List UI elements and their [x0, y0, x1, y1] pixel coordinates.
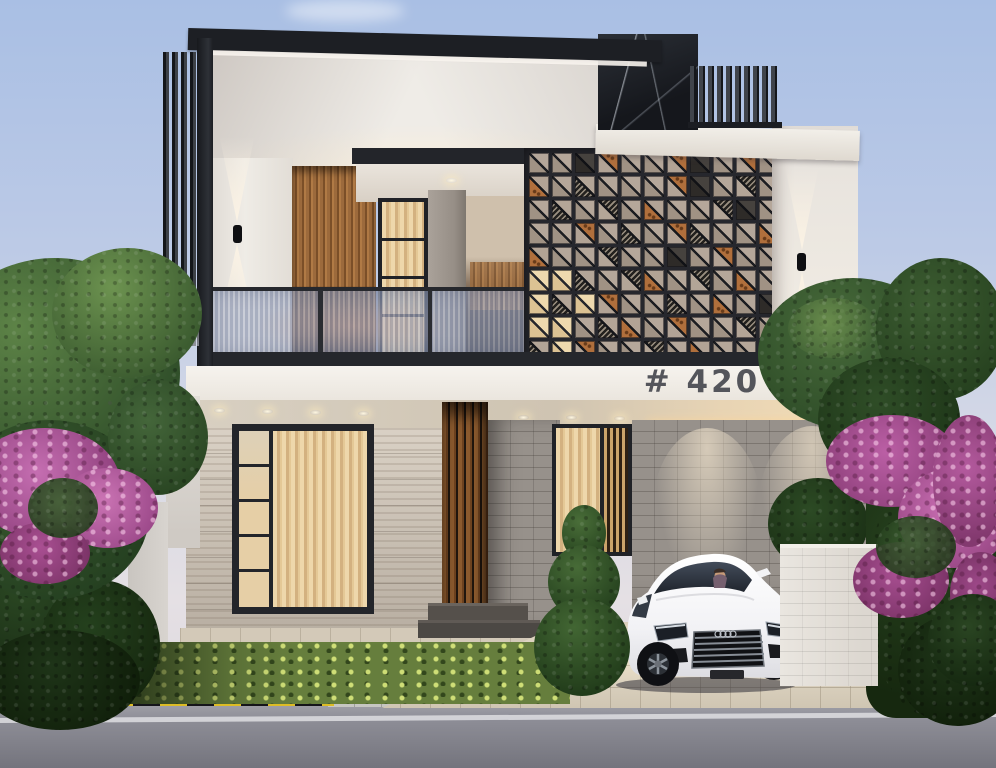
screen-cell — [690, 317, 710, 337]
screen-cell — [667, 176, 687, 196]
screen-cell — [644, 176, 664, 196]
screen-cell — [575, 317, 595, 337]
screen-cell — [713, 317, 733, 337]
railing-post — [428, 290, 432, 356]
screen-cell — [736, 270, 756, 290]
soffit-downlight — [614, 416, 625, 421]
screen-cell — [552, 317, 572, 337]
conical-bush-base — [534, 598, 630, 696]
screen-cell — [667, 317, 687, 337]
screen-cell — [598, 176, 618, 196]
screen-cell — [621, 294, 641, 314]
screen-cell — [713, 247, 733, 267]
window-mullion — [378, 238, 428, 241]
window-mullion — [239, 569, 269, 572]
roof-slat-base — [688, 122, 782, 128]
screen-cell — [575, 294, 595, 314]
screen-cell — [598, 270, 618, 290]
house-number: # 420 — [636, 364, 768, 400]
screen-cell — [552, 176, 572, 196]
window-mullion — [239, 499, 269, 502]
screen-cell — [667, 294, 687, 314]
screen-cell — [529, 223, 549, 243]
screen-cell — [552, 247, 572, 267]
screen-cell — [690, 200, 710, 220]
sconce-uplight — [780, 150, 824, 250]
soffit-downlight — [262, 409, 273, 414]
screen-cell — [690, 270, 710, 290]
screen-cell — [552, 294, 572, 314]
screen-cell — [529, 247, 549, 267]
screen-cell — [621, 317, 641, 337]
screen-cell — [552, 200, 572, 220]
ground-left-window — [232, 424, 374, 614]
screen-cell — [736, 317, 756, 337]
car-white-sedan — [606, 538, 806, 694]
screen-cell — [621, 153, 641, 173]
soffit-downlight — [358, 411, 369, 416]
screen-cell — [598, 247, 618, 267]
screen-cell — [644, 317, 664, 337]
scene-villa-rendering: # 420 — [0, 0, 996, 768]
screen-cell — [598, 200, 618, 220]
screen-cell — [598, 317, 618, 337]
window-side-pane — [239, 431, 269, 607]
screen-cell — [736, 223, 756, 243]
wall-sconce — [233, 225, 242, 243]
screen-cell — [736, 247, 756, 267]
soffit-downlight — [566, 415, 577, 420]
screen-cell — [713, 200, 733, 220]
screen-cell — [598, 153, 618, 173]
screen-cell — [713, 270, 733, 290]
tree-left — [52, 248, 202, 378]
screen-cell — [621, 247, 641, 267]
decorative-screen — [524, 148, 784, 366]
window-mullion — [378, 276, 428, 279]
hedge — [108, 642, 570, 704]
screen-cell — [575, 200, 595, 220]
screen-cell — [575, 176, 595, 196]
screen-cell — [644, 247, 664, 267]
screen-cell — [529, 270, 549, 290]
railing-post — [318, 290, 323, 356]
screen-cell — [713, 223, 733, 243]
screen-cell — [644, 270, 664, 290]
screen-cell — [667, 247, 687, 267]
screen-cell — [667, 270, 687, 290]
screen-cell — [598, 223, 618, 243]
screen-cell — [621, 200, 641, 220]
screen-cell — [552, 223, 572, 243]
screen-cell — [575, 247, 595, 267]
screen-cell — [736, 294, 756, 314]
screen-cell — [690, 223, 710, 243]
tree-right-highlight — [788, 298, 878, 358]
balcony-glass-railing — [208, 290, 530, 356]
screen-cell — [667, 200, 687, 220]
screen-cell — [529, 153, 549, 173]
screen-cell — [690, 247, 710, 267]
window-mullion — [239, 534, 269, 537]
screen-cell — [667, 223, 687, 243]
window-mullion — [239, 464, 269, 467]
screen-cell — [552, 153, 572, 173]
screen-cell — [690, 294, 710, 314]
screen-cell — [736, 200, 756, 220]
screen-cell — [529, 176, 549, 196]
soffit-downlight — [214, 408, 225, 413]
screen-cell — [713, 294, 733, 314]
roof-slat-screen — [690, 66, 780, 128]
screen-cell — [644, 223, 664, 243]
screen-cell — [529, 200, 549, 220]
screen-cell — [621, 176, 641, 196]
window-side-slats — [604, 428, 628, 552]
railing-top-rail — [208, 287, 530, 291]
entrance-step — [428, 603, 528, 620]
screen-cell — [529, 317, 549, 337]
screen-cell — [644, 153, 664, 173]
screen-cell — [575, 270, 595, 290]
screen-cell — [575, 153, 595, 173]
entrance-door — [442, 402, 488, 626]
screen-cell — [644, 200, 664, 220]
wall-sconce — [797, 253, 806, 271]
screen-cell — [575, 223, 595, 243]
canopy-downlight — [446, 178, 457, 183]
leaf-sprig — [28, 478, 98, 538]
screen-cell — [690, 176, 710, 196]
screen-cell — [736, 176, 756, 196]
screen-cell — [552, 270, 572, 290]
screen-cell — [598, 294, 618, 314]
screen-cell — [621, 223, 641, 243]
soffit-downlight — [310, 410, 321, 415]
window-curtain — [273, 431, 367, 607]
entrance-step — [418, 620, 540, 638]
screen-cell — [713, 176, 733, 196]
screen-cell — [644, 294, 664, 314]
porch-brick-wall — [488, 420, 560, 628]
screen-cell — [529, 294, 549, 314]
screen-cell — [621, 270, 641, 290]
leaf-sprig — [876, 516, 956, 578]
